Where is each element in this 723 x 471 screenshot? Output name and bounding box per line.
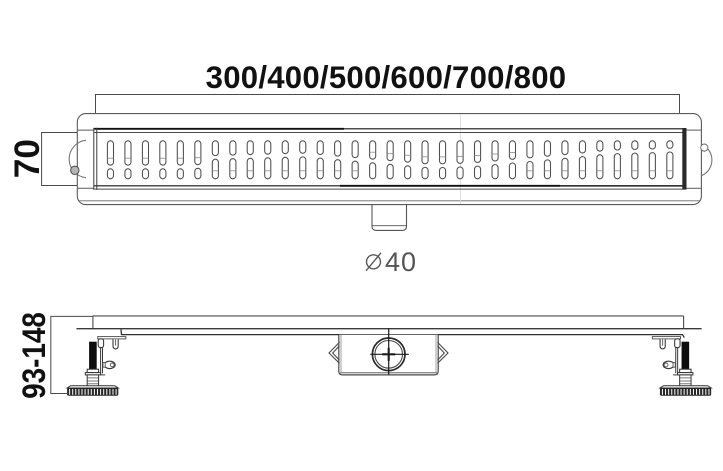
svg-text:70: 70: [8, 139, 47, 178]
svg-text:93-148: 93-148: [17, 312, 52, 399]
svg-text:300/400/500/600/700/800: 300/400/500/600/700/800: [206, 60, 567, 95]
svg-text:40: 40: [385, 247, 417, 277]
